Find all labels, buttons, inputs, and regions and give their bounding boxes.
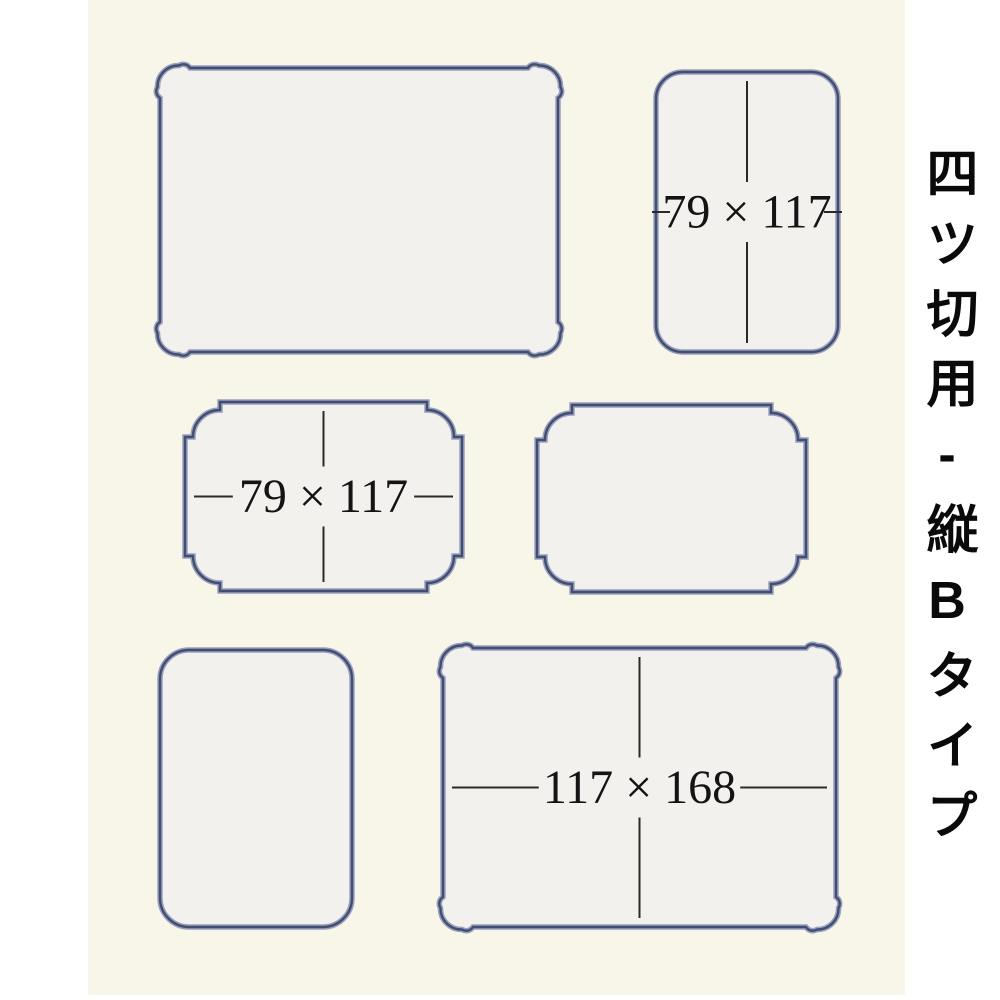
product-photo: 79 × 11779 × 117117 × 168 四ツ切用-縦Bタイプ [0,0,1000,1000]
dimension-label: 79 × 117 [662,186,831,239]
mat-opening-top-left-interior [156,64,561,355]
mat-opening-middle-right-interior [537,405,806,592]
product-side-label: 四ツ切用-縦Bタイプ [917,146,977,858]
dimension-label: 117 × 168 [543,761,736,814]
dimension-label: 79 × 117 [239,470,408,523]
mat-board-graphic: 79 × 11779 × 117117 × 168 [0,0,1000,1000]
mat-opening-bottom-left-interior [160,650,352,927]
